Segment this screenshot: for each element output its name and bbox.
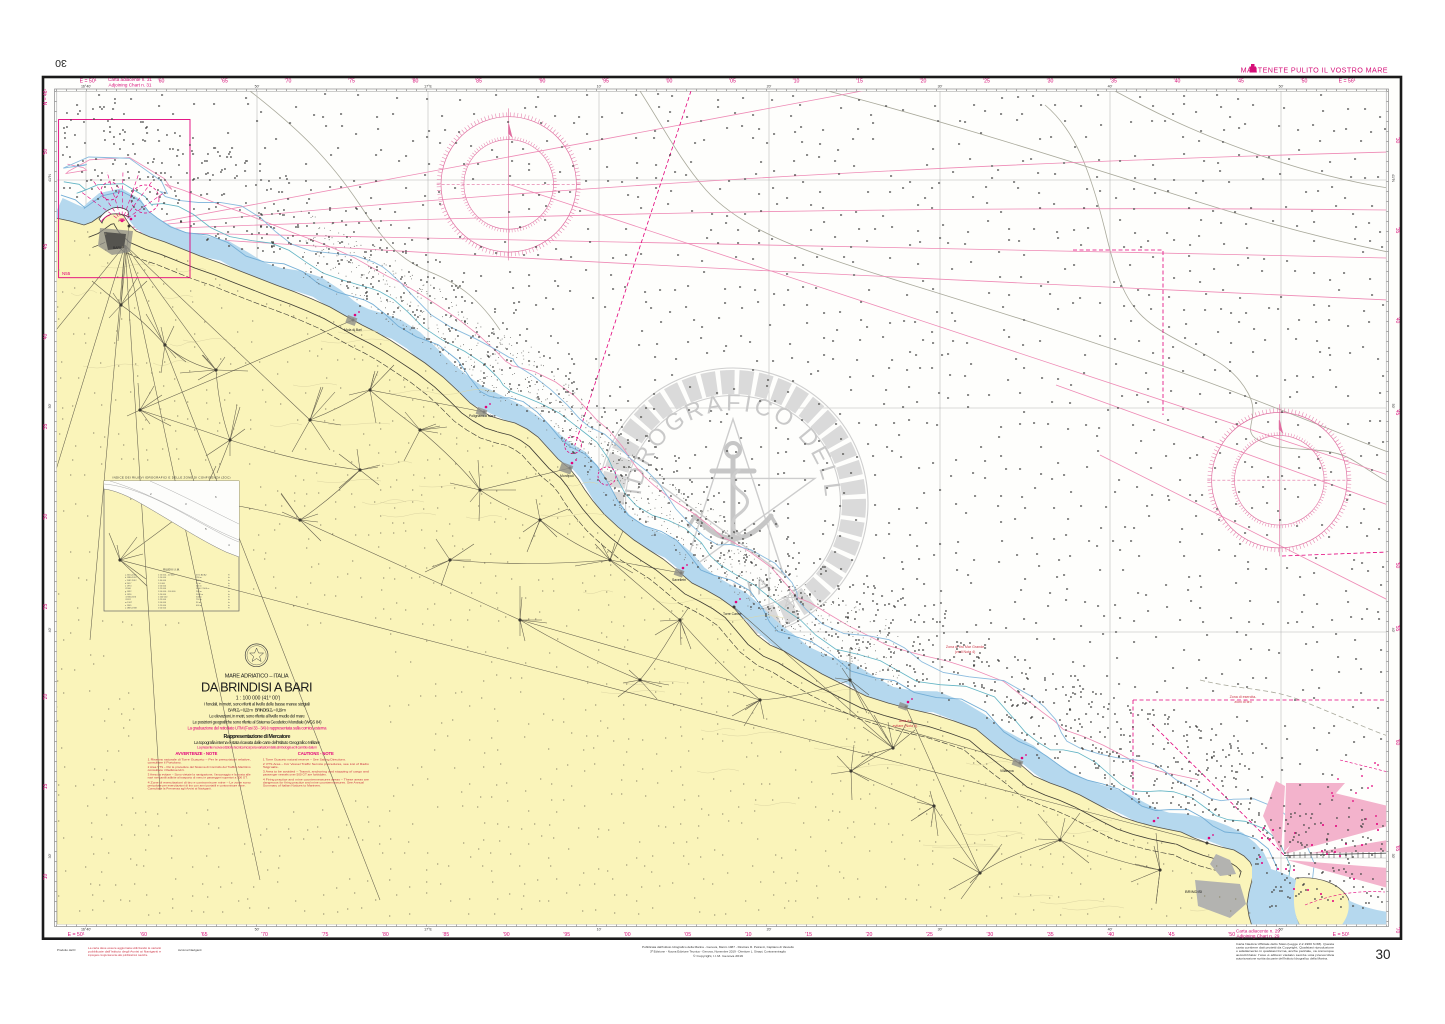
svg-text:'40: '40 xyxy=(43,334,49,341)
svg-text:50': 50' xyxy=(48,403,52,408)
svg-text:Avvisi ai Naviganti: Avvisi ai Naviganti xyxy=(178,948,202,952)
svg-text:'50: '50 xyxy=(1394,562,1400,569)
svg-text:1:30 000: 1:30 000 xyxy=(158,580,167,582)
svg-text:1000 / 1500 m: 1000 / 1500 m xyxy=(196,588,210,590)
svg-text:'10: '10 xyxy=(793,79,800,85)
svg-text:41°N: 41°N xyxy=(48,174,52,182)
svg-text:'25: '25 xyxy=(983,79,990,85)
svg-text:2 VTS Area – For Vessel Traffi: 2 VTS Area – For Vessel Traffic Service … xyxy=(263,762,370,766)
svg-text:Area da: Area da xyxy=(899,719,912,723)
svg-text:a 2010-2011: a 2010-2011 xyxy=(125,575,137,577)
svg-text:'10: '10 xyxy=(43,874,49,881)
svg-text:30: 30 xyxy=(1375,947,1390,962)
svg-text:N = 46¹: N = 46¹ xyxy=(43,88,49,105)
svg-text:1:50 000: 1:50 000 xyxy=(158,608,167,610)
svg-text:E = 50¹: E = 50¹ xyxy=(68,932,85,938)
svg-text:10': 10' xyxy=(597,85,602,89)
svg-text:1:5 000: 1:5 000 xyxy=(158,583,166,585)
svg-text:b 1986-2012: b 1986-2012 xyxy=(125,577,138,579)
svg-text:2000 m: 2000 m xyxy=(196,594,203,596)
svg-text:'85: '85 xyxy=(443,932,450,938)
svg-text:E = 50¹: E = 50¹ xyxy=(80,79,97,85)
svg-text:'20: '20 xyxy=(920,79,927,85)
svg-text:BARI: BARI xyxy=(113,246,121,250)
svg-text:★: ★ xyxy=(228,593,230,596)
svg-text:Carta adiacente n. 31: Carta adiacente n. 31 xyxy=(108,77,152,82)
svg-text:★: ★ xyxy=(228,576,230,579)
svg-text:16°40': 16°40' xyxy=(81,85,91,89)
svg-text:Zona di tiro Mar Grande: Zona di tiro Mar Grande xyxy=(946,645,984,649)
svg-text:'05: '05 xyxy=(729,79,736,85)
svg-text:3ª Edizione - Nuova Edizione T: 3ª Edizione - Nuova Edizione Tecnica - G… xyxy=(650,950,786,954)
svg-text:'40: '40 xyxy=(1107,932,1114,938)
svg-text:★: ★ xyxy=(228,607,230,610)
svg-text:40': 40' xyxy=(1108,85,1113,89)
svg-text:30: 30 xyxy=(55,57,67,69)
svg-text:La topografia interna è stata: La topografia interna è stata ricavata d… xyxy=(194,740,321,745)
svg-text:pubblicate dall’Istituto degli: pubblicate dall’Istituto degli Avvisi ai… xyxy=(88,949,162,953)
svg-text:400 m: 400 m xyxy=(196,605,202,607)
svg-text:1:20 000: 1:20 000 xyxy=(158,594,167,596)
svg-text:40': 40' xyxy=(1391,628,1395,633)
svg-text:DA BRINDISI A BARI: DA BRINDISI A BARI xyxy=(201,680,313,695)
svg-text:© Copyright, I.I.M. Genova 201: © Copyright, I.I.M. Genova 2019 xyxy=(693,954,743,958)
svg-text:'25: '25 xyxy=(926,932,933,938)
svg-text:50': 50' xyxy=(1279,928,1284,932)
svg-text:'45: '45 xyxy=(43,244,49,251)
svg-text:Consultare la Premessa agli Av: Consultare la Premessa agli Avvisi ai Na… xyxy=(148,786,212,790)
svg-text:Zona di esercita-: Zona di esercita- xyxy=(1230,695,1258,699)
svg-text:Prodotto dal D: Prodotto dal D xyxy=(57,948,75,952)
svg-text:Mola di Bari: Mola di Bari xyxy=(344,328,362,332)
svg-text:'15: '15 xyxy=(856,79,863,85)
svg-text:'05: '05 xyxy=(684,932,691,938)
svg-text:50': 50' xyxy=(1391,404,1395,409)
svg-text:'45: '45 xyxy=(1168,932,1175,938)
svg-text:Savelletri: Savelletri xyxy=(672,578,686,582)
svg-text:★: ★ xyxy=(228,582,230,585)
svg-text:20': 20' xyxy=(767,928,772,932)
svg-text:ZOC A1/A2: ZOC A1/A2 xyxy=(196,574,207,577)
svg-text:1:50 000: 1:50 000 xyxy=(158,586,167,588)
svg-text:'20: '20 xyxy=(866,932,873,938)
svg-text:evitare (Nota 3): evitare (Nota 3) xyxy=(893,724,918,728)
svg-text:'30: '30 xyxy=(43,514,49,521)
svg-text:'75: '75 xyxy=(322,932,329,938)
svg-text:Torre Canne: Torre Canne xyxy=(723,612,742,616)
svg-text:Monopoli: Monopoli xyxy=(560,474,574,478)
svg-text:1:25 000: 1:25 000 xyxy=(158,605,167,607)
svg-text:g 1932: g 1932 xyxy=(125,591,132,593)
svg-text:★: ★ xyxy=(228,590,230,593)
svg-text:Villanova: Villanova xyxy=(1000,769,1014,773)
svg-text:30': 30' xyxy=(938,928,943,932)
svg-text:INDICE DEI RILIEVI IDROGRAFICI: INDICE DEI RILIEVI IDROGRAFICI E DELLE Z… xyxy=(113,476,231,480)
svg-text:'45: '45 xyxy=(1237,79,1244,85)
svg-text:Le posizioni geografiche sono: Le posizioni geografiche sono riferite a… xyxy=(193,719,323,724)
svg-text:MANTENETE PULITO IL VOSTRO MAR: MANTENETE PULITO IL VOSTRO MARE xyxy=(1241,66,1388,75)
svg-text:'00: '00 xyxy=(666,79,673,85)
svg-text:Summary of Italian Notices to: Summary of Italian Notices to Mariners. xyxy=(263,783,321,787)
svg-text:BARI Z₀ = 0,22 m BRINDISI Z: BARI Z₀ = 0,22 m BRINDISI Z₀ = 0,19 m xyxy=(228,708,286,713)
svg-text:★: ★ xyxy=(228,587,230,590)
svg-text:'40: '40 xyxy=(1394,317,1400,324)
svg-text:★: ★ xyxy=(228,598,230,601)
svg-text:'95: '95 xyxy=(563,932,570,938)
svg-text:m 1967: m 1967 xyxy=(125,602,133,604)
svg-text:La carta deve essere aggiornat: La carta deve essere aggiornata utilizza… xyxy=(88,946,161,950)
svg-text:Pubblicata dall’Istituto Idrog: Pubblicata dall’Istituto Idrografico del… xyxy=(642,945,794,949)
svg-text:'30: '30 xyxy=(1394,137,1400,144)
svg-text:750 m: 750 m xyxy=(196,599,202,601)
svg-text:'95: '95 xyxy=(602,79,609,85)
svg-text:90 m: 90 m xyxy=(196,602,201,604)
svg-text:'70: '70 xyxy=(1394,927,1400,934)
svg-text:'75: '75 xyxy=(348,79,355,85)
svg-text:10': 10' xyxy=(597,928,602,932)
svg-text:'90: '90 xyxy=(503,932,510,938)
svg-text:'15: '15 xyxy=(43,784,49,791)
svg-text:'35: '35 xyxy=(43,424,49,431)
svg-text:CAUTIONS - NOTE: CAUTIONS - NOTE xyxy=(298,751,334,756)
svg-text:f 1966: f 1966 xyxy=(125,588,132,590)
svg-text:30': 30' xyxy=(938,85,943,89)
svg-text:Adjoining Chart n. 31: Adjoining Chart n. 31 xyxy=(109,83,152,88)
svg-text:250 m: 250 m xyxy=(196,577,202,579)
svg-text:'20: '20 xyxy=(43,694,49,701)
svg-text:Adjoining Chart n. 29: Adjoining Chart n. 29 xyxy=(1237,934,1280,939)
svg-text:1:10 000 - 20 000: 1:10 000 - 20 000 xyxy=(158,575,175,577)
svg-text:'60: '60 xyxy=(158,79,165,85)
svg-text:★: ★ xyxy=(228,596,230,599)
svg-text:'60: '60 xyxy=(1394,739,1400,746)
svg-text:passenger vessels over 500 GT: passenger vessels over 500 GT are forbid… xyxy=(263,773,327,777)
svg-text:Le elevazioni, in metri, sono: Le elevazioni, in metri, sono riferite a… xyxy=(209,713,305,718)
svg-text:I fondali, in metri, sono rife: I fondali, in metri, sono riferiti al li… xyxy=(204,702,310,707)
svg-text:1:25 000: 1:25 000 xyxy=(158,588,167,590)
svg-text:consultare il Portolano.: consultare il Portolano. xyxy=(148,761,182,765)
svg-text:30': 30' xyxy=(48,853,52,858)
svg-text:'65: '65 xyxy=(1394,845,1400,852)
svg-text:autorizzazione scritta da part: autorizzazione scritta da parte dell’Ist… xyxy=(1236,956,1328,960)
svg-text:40': 40' xyxy=(48,627,52,632)
svg-text:★: ★ xyxy=(228,579,230,582)
svg-text:Polignano a Mare: Polignano a Mare xyxy=(469,414,496,418)
svg-text:'80: '80 xyxy=(412,79,419,85)
svg-text:navi mercantili adibite al tra: navi mercantili adibite al trasporto di … xyxy=(148,776,248,780)
svg-text:'50: '50 xyxy=(1228,932,1235,938)
svg-text:l 1874: l 1874 xyxy=(125,599,132,601)
svg-text:'85: '85 xyxy=(475,79,482,85)
svg-text:30': 30' xyxy=(1391,854,1395,859)
svg-text:1:20 000: 1:20 000 xyxy=(158,577,167,579)
svg-text:'00: '00 xyxy=(624,932,631,938)
svg-text:'45: '45 xyxy=(1394,409,1400,416)
svg-text:'50: '50 xyxy=(43,149,49,156)
svg-text:'30: '30 xyxy=(987,932,994,938)
svg-text:'80: '80 xyxy=(382,932,389,938)
svg-text:'35: '35 xyxy=(1047,932,1054,938)
svg-text:'90: '90 xyxy=(539,79,546,85)
svg-text:1:50 000: 1:50 000 xyxy=(158,602,167,604)
svg-text:La graduazione del reticolato: La graduazione del reticolato UTM (Fusi … xyxy=(188,726,328,731)
svg-text:i 1908-1926: i 1908-1926 xyxy=(125,597,137,599)
svg-text:★: ★ xyxy=(228,604,230,607)
svg-text:17°E: 17°E xyxy=(424,85,432,89)
svg-text:20': 20' xyxy=(767,85,772,89)
svg-text:BRINDISI: BRINDISI xyxy=(1185,889,1202,894)
svg-text:impiegare congiuntamente alle: impiegare congiuntamente alle pubblicazi… xyxy=(88,953,148,957)
svg-text:★: ★ xyxy=(228,585,230,588)
svg-text:'65: '65 xyxy=(201,932,208,938)
svg-text:'15: '15 xyxy=(805,932,812,938)
svg-text:50 m: 50 m xyxy=(196,583,201,585)
svg-text:50': 50' xyxy=(255,85,260,89)
svg-text:c 1987-2012: c 1987-2012 xyxy=(125,580,137,582)
svg-text:★: ★ xyxy=(228,601,230,604)
svg-text:100 m: 100 m xyxy=(196,580,202,582)
svg-text:★: ★ xyxy=(228,574,230,577)
svg-text:zioni di tiro: zioni di tiro xyxy=(1234,700,1251,704)
svg-text:'35: '35 xyxy=(1394,227,1400,234)
svg-text:e 1974: e 1974 xyxy=(125,586,132,588)
svg-text:La presente nuova edizione tec: La presente nuova edizione tecnica incor… xyxy=(197,745,317,749)
svg-text:n 1905: n 1905 xyxy=(125,605,132,607)
svg-text:'30: '30 xyxy=(1047,79,1054,85)
svg-text:50': 50' xyxy=(255,928,260,932)
svg-text:'35: '35 xyxy=(1110,79,1117,85)
svg-text:o 1869-1908: o 1869-1908 xyxy=(125,608,138,610)
svg-text:Signals.: Signals. xyxy=(263,765,279,769)
svg-text:'40: '40 xyxy=(1174,79,1181,85)
svg-text:50': 50' xyxy=(1279,85,1284,89)
svg-text:1 Torre Guaceto natural reserv: 1 Torre Guaceto natural reserve – See Sa… xyxy=(263,758,346,762)
svg-text:N55: N55 xyxy=(62,271,71,276)
svg-text:(vedi Nota 4): (vedi Nota 4) xyxy=(955,650,976,654)
svg-text:h 1926: h 1926 xyxy=(125,594,132,596)
svg-text:1:100 000: 1:100 000 xyxy=(158,597,168,599)
svg-text:RILIEVI I.I.M.: RILIEVI I.I.M. xyxy=(163,568,180,572)
svg-text:40': 40' xyxy=(1108,928,1113,932)
svg-text:'70: '70 xyxy=(285,79,292,85)
svg-text:1:25 000: 1:25 000 xyxy=(158,599,167,601)
svg-text:200 m: 200 m xyxy=(196,591,202,593)
svg-text:500 m: 500 m xyxy=(196,597,202,599)
svg-text:1:50 000 - 100 000: 1:50 000 - 100 000 xyxy=(158,591,176,593)
svg-text:AVVERTENZE - NOTE: AVVERTENZE - NOTE xyxy=(175,751,217,756)
svg-text:'10: '10 xyxy=(745,932,752,938)
svg-text:consultare i Radioservizi.: consultare i Radioservizi. xyxy=(148,768,185,772)
svg-text:'65: '65 xyxy=(221,79,228,85)
svg-text:'25: '25 xyxy=(43,604,49,611)
svg-text:'60: '60 xyxy=(140,932,147,938)
svg-text:'70: '70 xyxy=(261,932,268,938)
svg-text:41°N: 41°N xyxy=(1391,174,1395,182)
svg-text:E = 56¹: E = 56¹ xyxy=(1339,79,1356,85)
svg-text:'50: '50 xyxy=(1301,79,1308,85)
svg-text:300 m: 300 m xyxy=(196,586,202,588)
svg-text:17°E: 17°E xyxy=(424,928,432,932)
svg-text:d 2017: d 2017 xyxy=(125,583,132,585)
svg-text:16°40': 16°40' xyxy=(81,928,91,932)
svg-text:E = 50¹: E = 50¹ xyxy=(1333,932,1350,938)
